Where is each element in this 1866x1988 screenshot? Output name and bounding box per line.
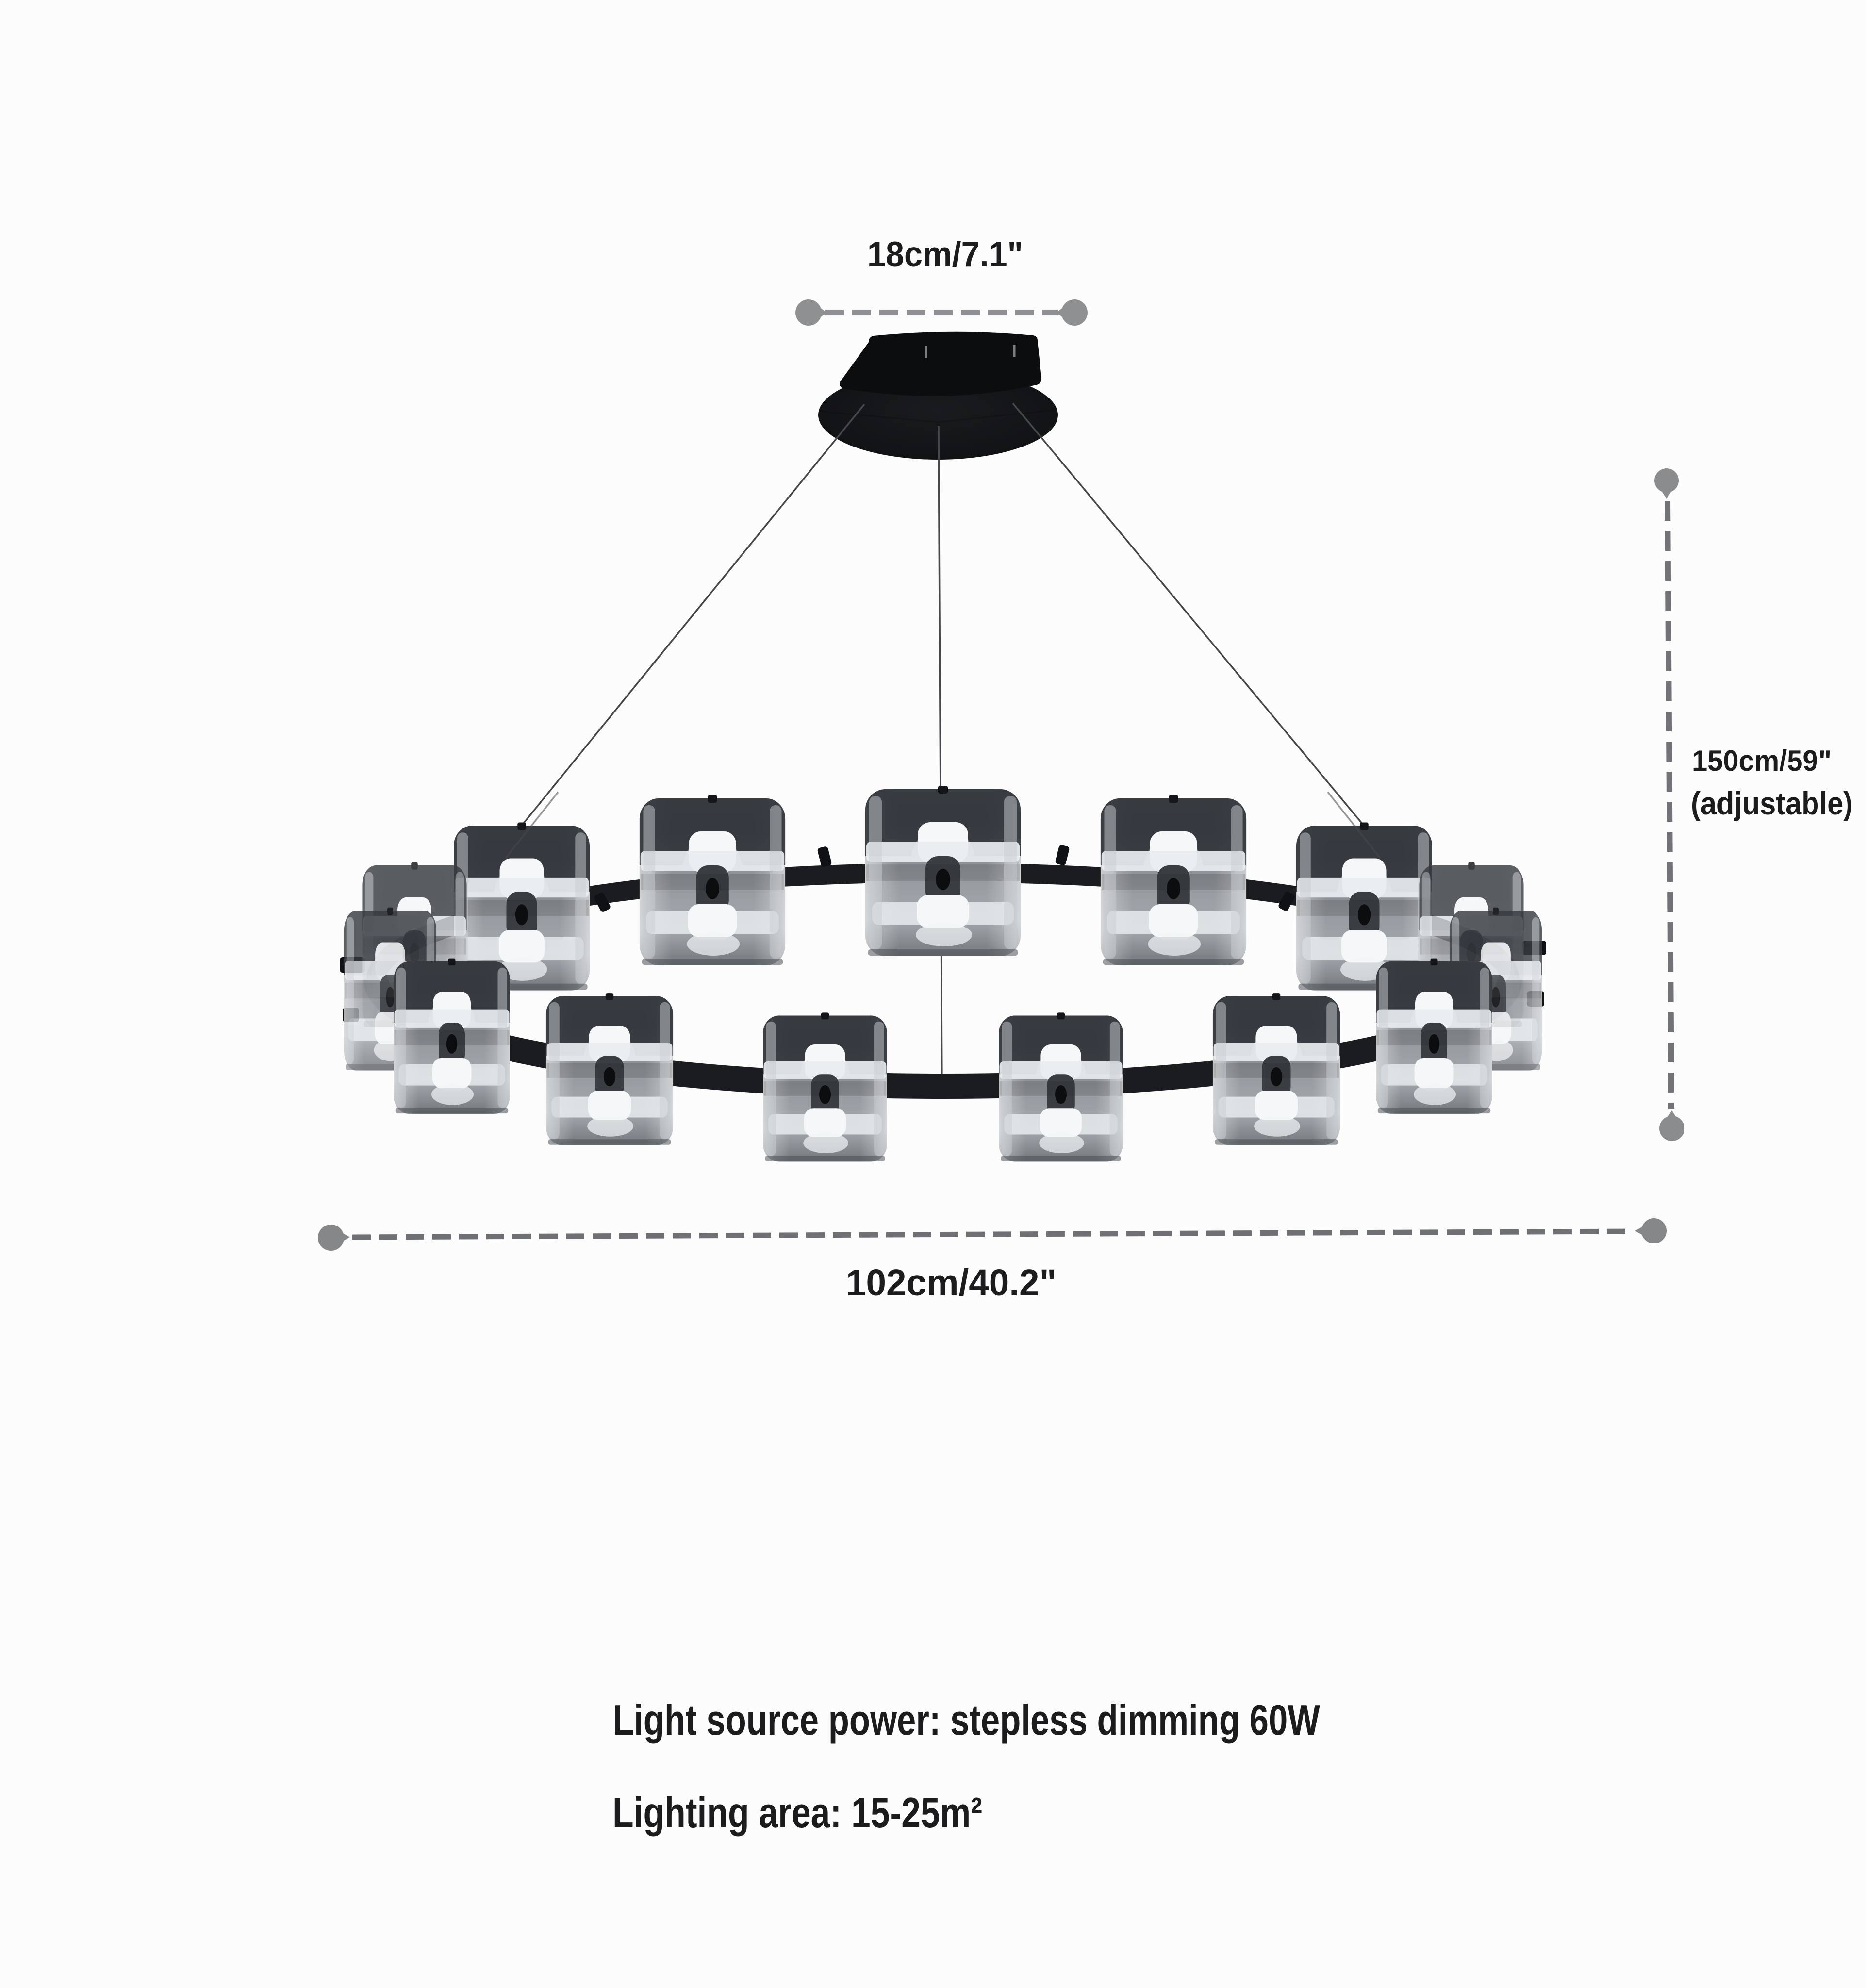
svg-text:18cm/7.1": 18cm/7.1"	[867, 235, 1023, 274]
svg-text:(adjustable): (adjustable)	[1691, 785, 1853, 821]
svg-text:Light source power: stepless d: Light source power: stepless dimming 60W	[613, 1696, 1320, 1744]
svg-text:Lighting area: 15-25m²: Lighting area: 15-25m²	[612, 1789, 982, 1837]
svg-text:150cm/59": 150cm/59"	[1692, 745, 1832, 777]
svg-text:102cm/40.2": 102cm/40.2"	[846, 1262, 1057, 1304]
